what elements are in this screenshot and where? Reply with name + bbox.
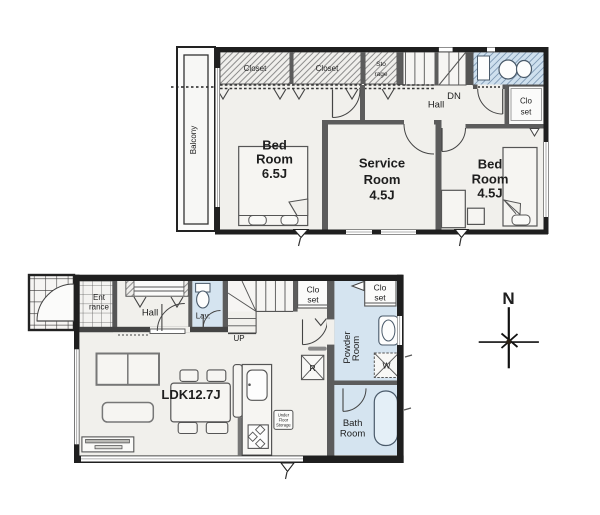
svg-text:Sto: Sto <box>376 61 386 68</box>
svg-text:Clo: Clo <box>374 283 387 293</box>
svg-text:Bed: Bed <box>262 138 287 153</box>
svg-text:UP: UP <box>233 334 244 343</box>
svg-text:N: N <box>502 289 514 308</box>
svg-text:rance: rance <box>89 303 110 312</box>
svg-text:Clo: Clo <box>307 285 320 295</box>
svg-text:W: W <box>382 361 390 371</box>
svg-text:Service: Service <box>359 156 405 171</box>
svg-text:set: set <box>307 295 319 305</box>
svg-text:set: set <box>521 108 532 117</box>
svg-text:set: set <box>374 293 386 303</box>
svg-text:Room: Room <box>472 172 509 187</box>
svg-text:Storage: Storage <box>276 423 291 428</box>
svg-text:Room: Room <box>340 429 365 440</box>
svg-text:6.5J: 6.5J <box>262 166 287 181</box>
svg-text:DN: DN <box>447 91 461 102</box>
svg-text:LDK12.7J: LDK12.7J <box>161 387 220 402</box>
svg-text:Room: Room <box>351 336 362 361</box>
svg-text:Room: Room <box>256 152 293 167</box>
svg-text:Bed: Bed <box>478 157 503 172</box>
svg-text:Closet: Closet <box>244 64 267 73</box>
svg-text:Balcony: Balcony <box>189 126 198 154</box>
svg-text:Ent: Ent <box>93 293 106 302</box>
svg-text:Hall: Hall <box>142 308 158 319</box>
svg-text:Room: Room <box>364 172 401 187</box>
svg-text:Hall: Hall <box>428 100 444 111</box>
svg-text:4.5J: 4.5J <box>477 186 502 201</box>
svg-text:Clo: Clo <box>520 97 533 106</box>
svg-text:rage: rage <box>374 71 387 78</box>
svg-text:R: R <box>310 363 316 373</box>
svg-text:Closet: Closet <box>316 64 339 73</box>
svg-text:4.5J: 4.5J <box>369 188 394 203</box>
svg-text:Bath: Bath <box>343 418 363 429</box>
